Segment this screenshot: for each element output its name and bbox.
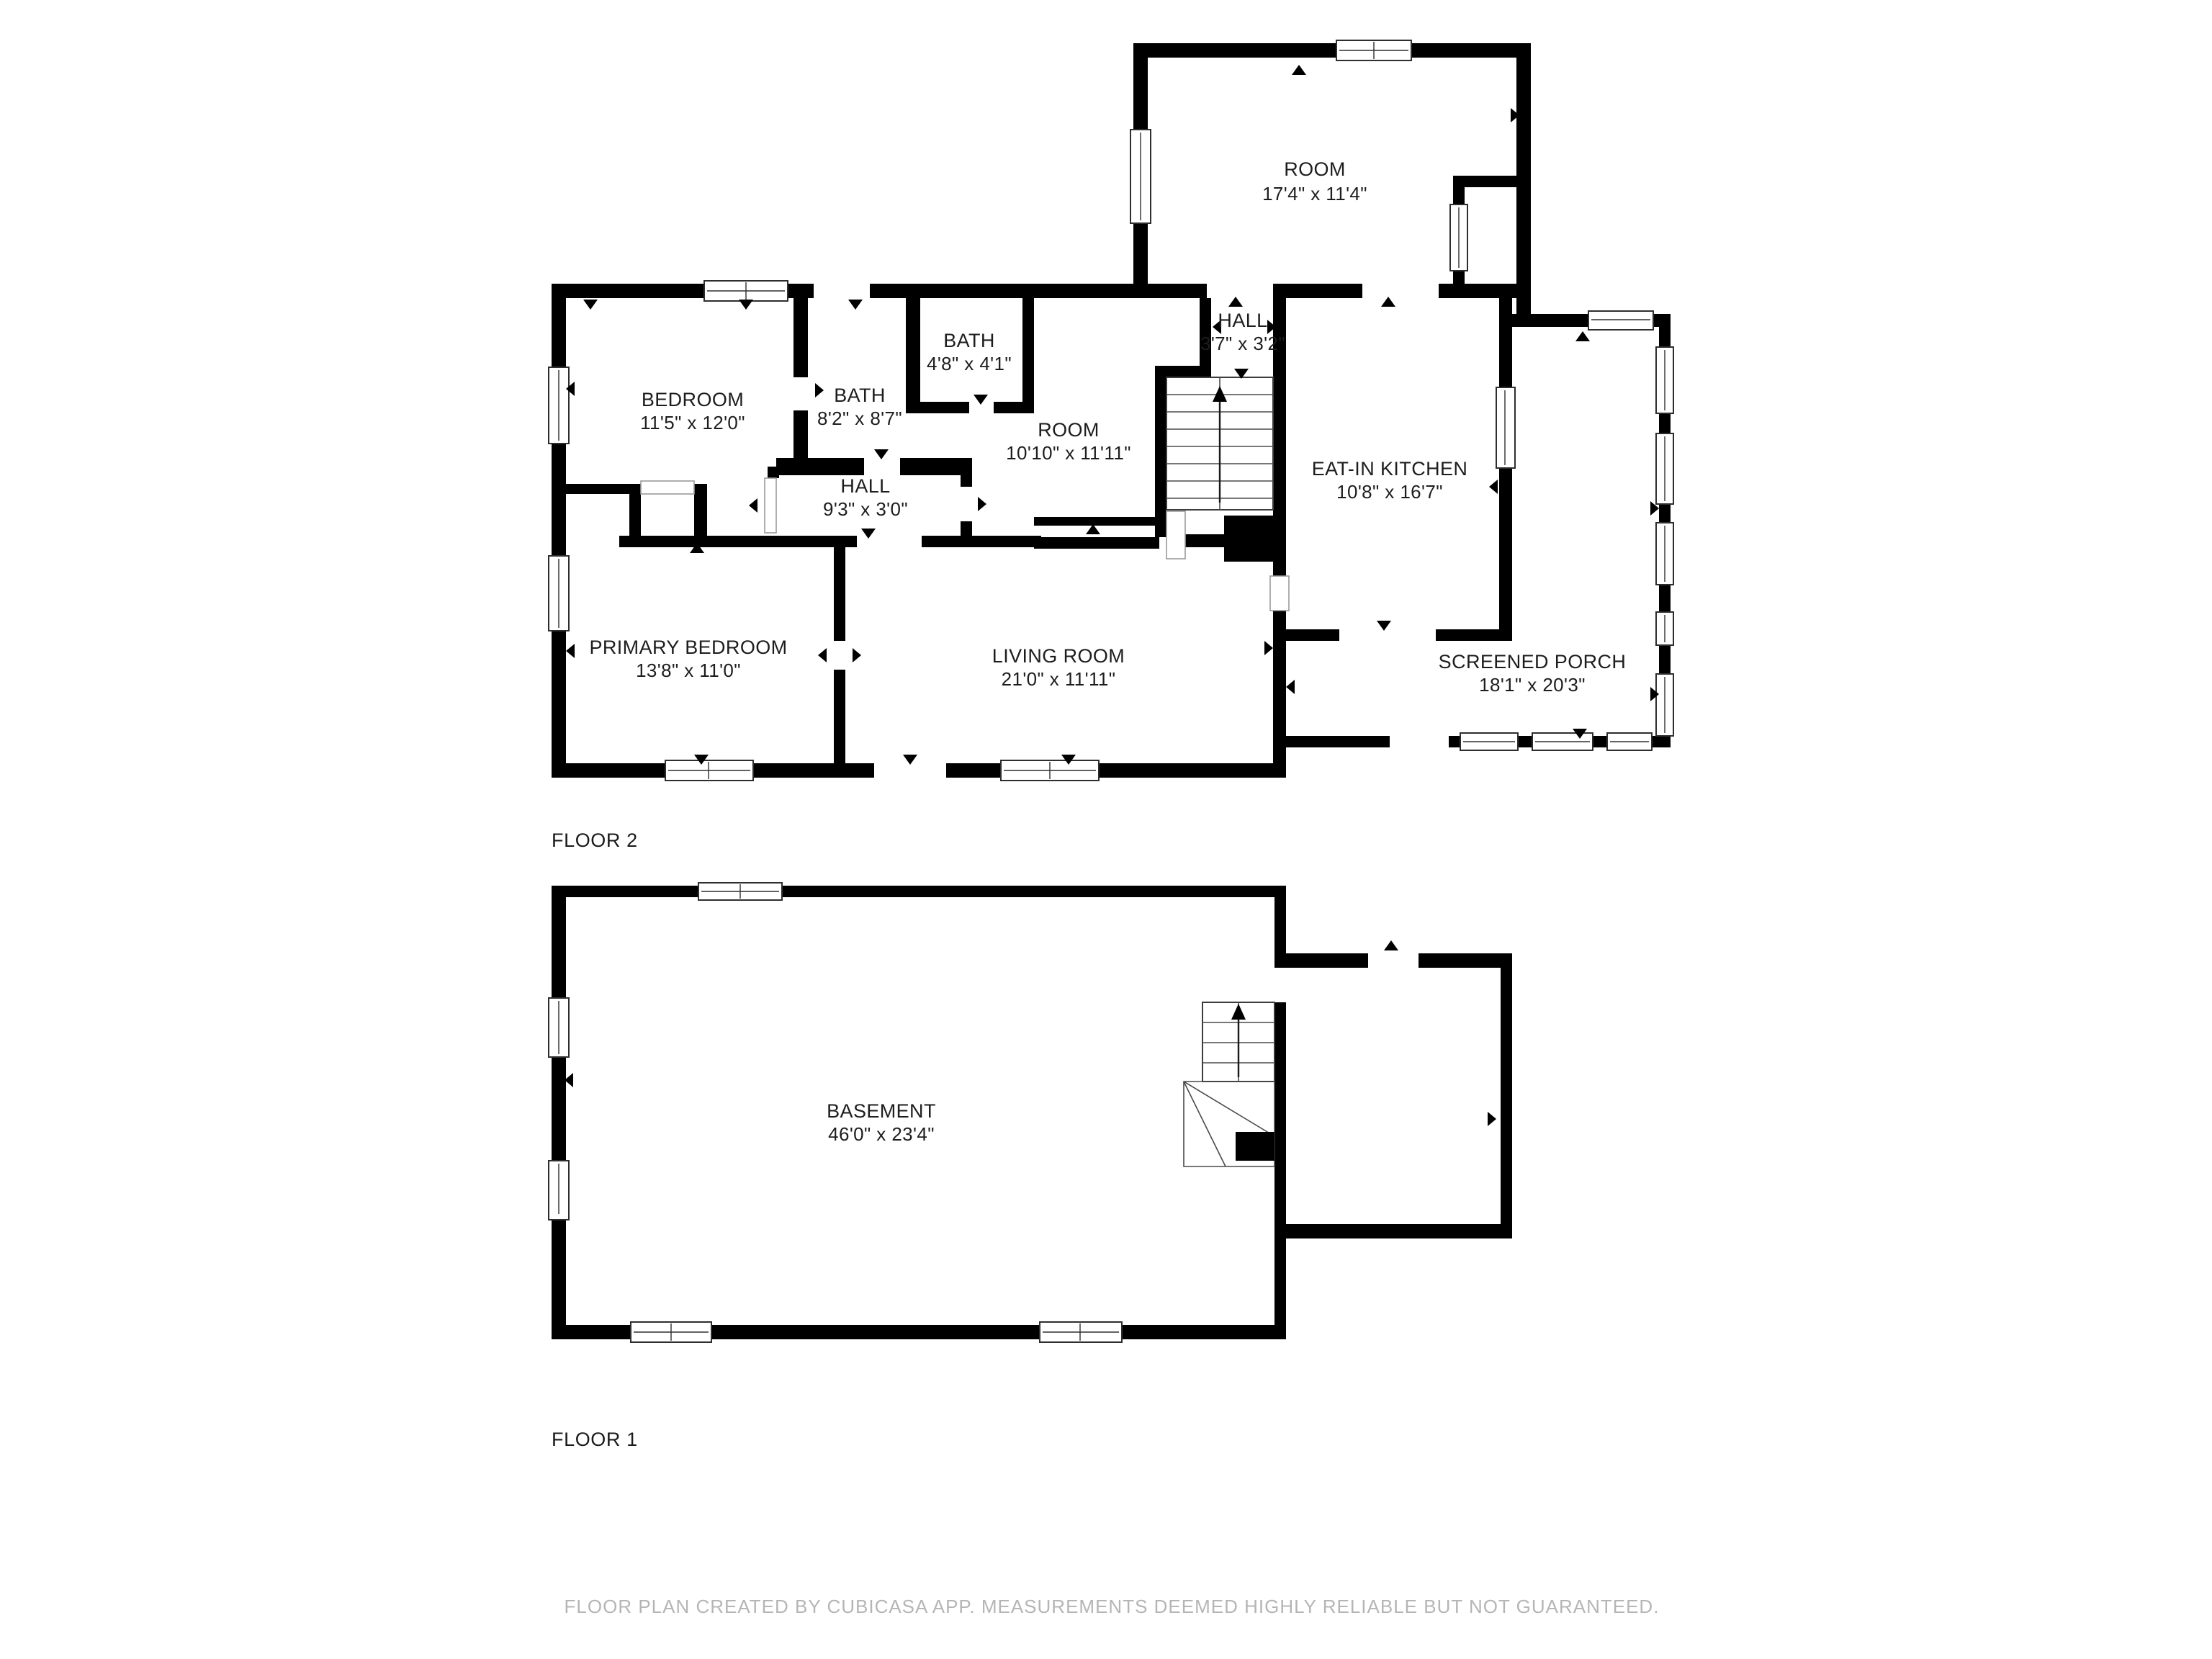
room-dims-basement: 46'0" x 23'4" [828, 1123, 935, 1145]
room-dims-living-room: 21'0" x 11'11" [1002, 668, 1116, 690]
window [549, 556, 569, 631]
room-name-eat-in-kitchen: EAT-IN KITCHEN [1312, 458, 1468, 480]
door-markers-floor1 [565, 940, 1496, 1126]
room-name-bedroom: BEDROOM [642, 389, 744, 410]
room-name-basement: BASEMENT [827, 1100, 936, 1122]
window [1656, 674, 1673, 736]
room-name-screened-porch: SCREENED PORCH [1439, 651, 1627, 673]
door-marker [1488, 1112, 1496, 1126]
door-opening [765, 478, 776, 533]
window [704, 281, 788, 301]
window [1001, 760, 1099, 781]
window [1496, 387, 1515, 468]
room-name-top-room: ROOM [1284, 158, 1346, 180]
floor-plan-canvas: ROOM 17'4" x 11'4" BATH 4'8" x 4'1" BATH… [0, 0, 2212, 1659]
room-dims-room-mid: 10'10" x 11'11" [1006, 442, 1131, 464]
window [1532, 733, 1593, 750]
window [1450, 204, 1467, 271]
door-opening [1270, 576, 1289, 611]
room-dims-bedroom: 11'5" x 12'0" [640, 412, 745, 433]
room-dims-eat-in-kitchen: 10'8" x 16'7" [1336, 481, 1443, 503]
room-name-bath-small: BATH [943, 330, 995, 351]
room-name-primary-bedroom: PRIMARY BEDROOM [589, 637, 787, 658]
door-marker [583, 300, 1587, 765]
room-name-hall-small: HALL [1218, 310, 1267, 331]
window [1588, 311, 1653, 330]
room-dims-bath-large: 8'2" x 8'7" [817, 408, 902, 429]
window [1656, 523, 1673, 585]
door-opening [641, 481, 694, 494]
room-dims-bath-small: 4'8" x 4'1" [927, 353, 1012, 374]
window [1336, 40, 1411, 60]
window [631, 1322, 711, 1342]
door-opening [1166, 511, 1185, 559]
staircase-up-icon [1166, 377, 1273, 510]
floor1-plan: BASEMENT 46'0" x 23'4" FLOOR 1 [549, 883, 1512, 1450]
room-dims-hall-small: 3'7" x 3'2" [1200, 333, 1285, 354]
floor1-label: FLOOR 1 [552, 1429, 638, 1450]
room-labels-floor1: BASEMENT 46'0" x 23'4" [827, 1100, 936, 1145]
room-dims-top-room: 17'4" x 11'4" [1262, 183, 1367, 204]
floor2-label: FLOOR 2 [552, 829, 638, 851]
room-dims-hall-long: 9'3" x 3'0" [823, 498, 908, 520]
staircase-basement-icon [1184, 1002, 1274, 1166]
floor-plan-page: ROOM 17'4" x 11'4" BATH 4'8" x 4'1" BATH… [0, 0, 2212, 1659]
window [549, 998, 569, 1057]
floor1-walls [552, 886, 1512, 1339]
window [1130, 130, 1151, 223]
window [665, 760, 753, 781]
window [549, 1161, 569, 1220]
window [1656, 347, 1673, 413]
room-name-bath-large: BATH [834, 385, 886, 406]
window [698, 883, 782, 900]
window [1460, 733, 1518, 750]
floor2-plan: ROOM 17'4" x 11'4" BATH 4'8" x 4'1" BATH… [549, 40, 1673, 851]
window [1656, 433, 1673, 504]
window [549, 367, 569, 444]
window [1040, 1322, 1122, 1342]
room-name-room-mid: ROOM [1038, 419, 1100, 441]
room-dims-screened-porch: 18'1" x 20'3" [1479, 674, 1586, 696]
window [1607, 733, 1652, 750]
door-marker [1384, 940, 1398, 950]
room-labels-floor2: ROOM 17'4" x 11'4" BATH 4'8" x 4'1" BATH… [589, 158, 1626, 696]
footer-disclaimer: FLOOR PLAN CREATED BY CUBICASA APP. MEAS… [565, 1596, 1660, 1617]
room-dims-primary-bedroom: 13'8" x 11'0" [636, 660, 741, 681]
window [1656, 612, 1673, 645]
room-name-living-room: LIVING ROOM [992, 645, 1125, 667]
room-name-hall-long: HALL [840, 475, 890, 497]
